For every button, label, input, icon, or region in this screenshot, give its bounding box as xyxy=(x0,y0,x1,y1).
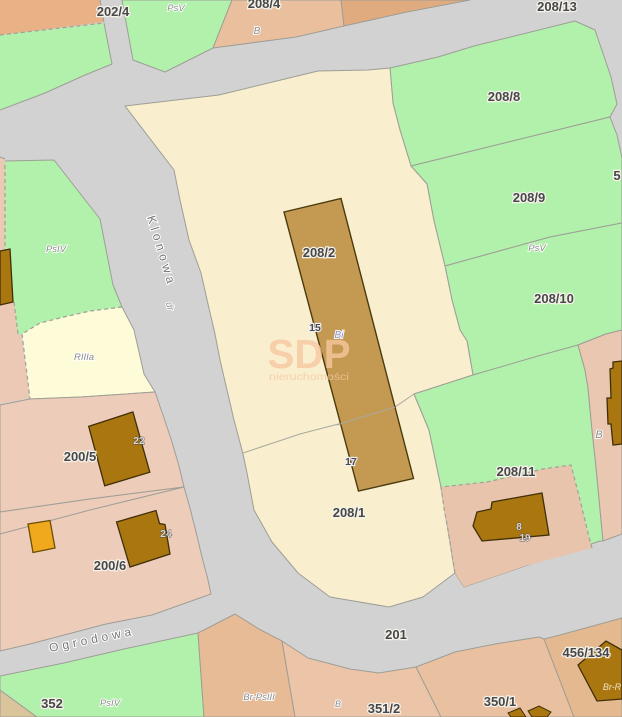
svg-text:208/11: 208/11 xyxy=(496,464,535,479)
svg-text:RIIIa: RIIIa xyxy=(74,352,94,363)
svg-text:351/2: 351/2 xyxy=(368,701,401,716)
svg-text:208/13: 208/13 xyxy=(537,0,577,14)
svg-text:Br-R: Br-R xyxy=(603,682,622,692)
svg-text:24: 24 xyxy=(160,528,172,540)
svg-text:B: B xyxy=(335,699,341,709)
svg-text:200/5: 200/5 xyxy=(64,449,97,464)
svg-text:5: 5 xyxy=(613,168,620,183)
svg-text:208/8: 208/8 xyxy=(488,89,521,104)
svg-text:352: 352 xyxy=(41,696,63,711)
svg-text:350/1: 350/1 xyxy=(484,694,517,709)
svg-text:Bi: Bi xyxy=(335,330,345,341)
svg-text:208/2: 208/2 xyxy=(303,245,336,260)
svg-text:208/4: 208/4 xyxy=(248,0,281,11)
svg-text:17: 17 xyxy=(345,456,357,468)
svg-text:15: 15 xyxy=(309,322,321,334)
svg-text:201: 201 xyxy=(385,627,407,642)
svg-text:19: 19 xyxy=(519,533,531,544)
svg-text:202/4: 202/4 xyxy=(97,4,130,19)
svg-text:208/10: 208/10 xyxy=(534,291,574,306)
svg-text:208/1: 208/1 xyxy=(333,505,366,520)
svg-text:22: 22 xyxy=(133,435,145,447)
svg-text:PsIV: PsIV xyxy=(100,698,122,709)
svg-text:B: B xyxy=(254,26,261,37)
svg-text:456/134: 456/134 xyxy=(563,645,611,660)
svg-text:8: 8 xyxy=(516,522,522,533)
svg-text:B: B xyxy=(595,429,602,441)
svg-text:Br-PsIII: Br-PsIII xyxy=(243,692,275,703)
svg-text:PsIV: PsIV xyxy=(46,244,68,255)
svg-text:208/9: 208/9 xyxy=(513,190,546,205)
svg-text:PsV: PsV xyxy=(167,3,186,14)
svg-text:nieruchomości: nieruchomości xyxy=(269,372,349,383)
svg-text:PsV: PsV xyxy=(528,243,547,254)
svg-text:200/6: 200/6 xyxy=(94,558,127,573)
